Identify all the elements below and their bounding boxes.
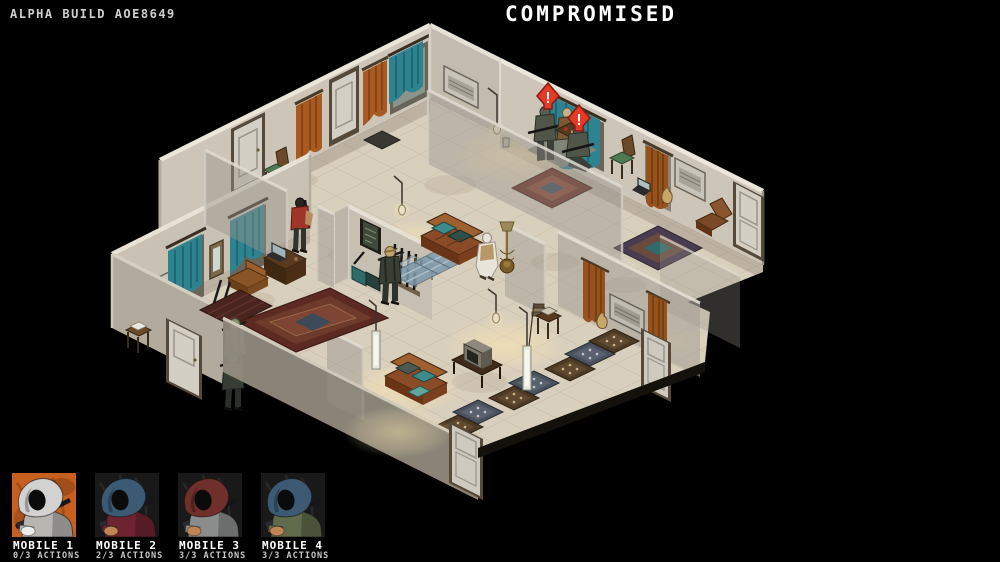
svg-text:!: !: [543, 89, 552, 107]
unit-actions: 3/3 ACTIONS: [262, 551, 329, 561]
status-title: COMPROMISED: [505, 2, 677, 26]
unit-card-mobile-1[interactable]: MOBILE 1 0/3 ACTIONS: [12, 473, 76, 537]
svg-text:!: !: [574, 111, 583, 129]
unit-card-mobile-4[interactable]: MOBILE 4 3/3 ACTIONS: [261, 473, 325, 537]
unit-card-mobile-3[interactable]: MOBILE 3 3/3 ACTIONS: [178, 473, 242, 537]
unit-actions: 2/3 ACTIONS: [96, 551, 163, 561]
game-screen: ! !: [0, 0, 1000, 562]
left-mirror: [210, 240, 223, 279]
unit-actions: 0/3 ACTIONS: [13, 551, 80, 561]
units-bar: MOBILE 1 0/3 ACTIONS MOBILE 2 2/3 ACTION…: [0, 473, 400, 562]
unit-card-mobile-2[interactable]: MOBILE 2 2/3 ACTIONS: [95, 473, 159, 537]
build-label: ALPHA BUILD AOE8649: [10, 7, 176, 21]
unit-actions: 3/3 ACTIONS: [179, 551, 246, 561]
